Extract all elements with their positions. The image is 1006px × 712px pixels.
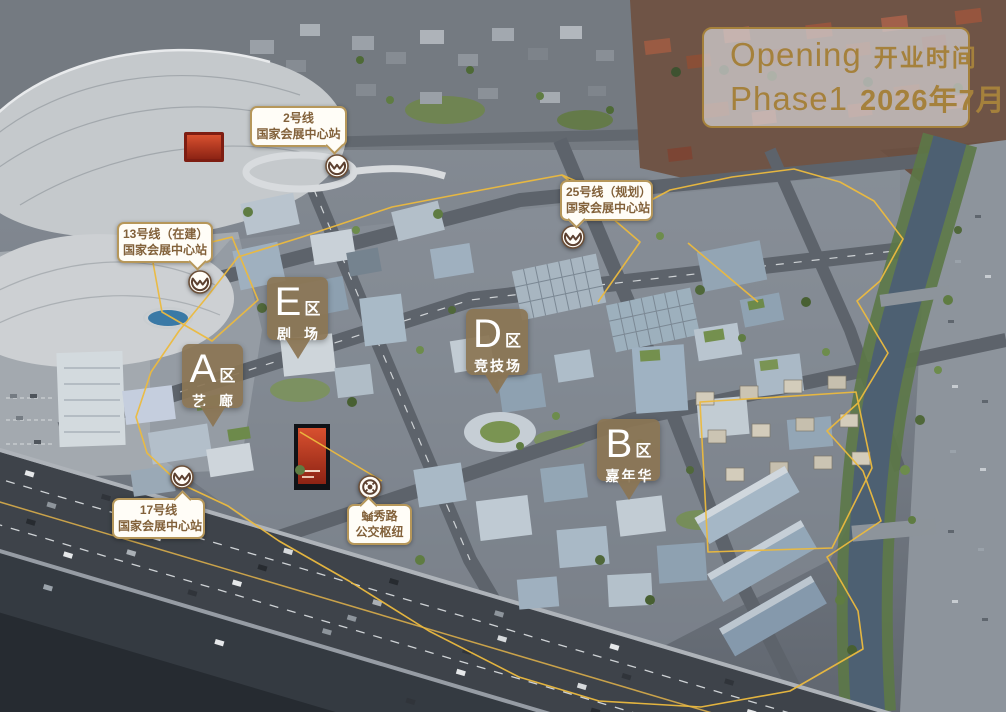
zone-pointer bbox=[616, 479, 642, 500]
billboard-screen bbox=[294, 424, 330, 490]
metro-station-icon-line13 bbox=[188, 270, 212, 294]
metro-station-icon-line2 bbox=[325, 154, 349, 178]
zone-district-suffix: 区 bbox=[304, 295, 320, 319]
callout-line2: 公交枢纽 bbox=[353, 525, 406, 541]
callout-line1: 13号线（在建） bbox=[123, 227, 207, 243]
opening-title-en: Opening bbox=[730, 36, 862, 74]
bus-hub-icon bbox=[358, 475, 382, 499]
zone-district-suffix: 区 bbox=[219, 362, 235, 386]
callout-metro-line17: 17号线 国家会展中心站 bbox=[112, 498, 205, 539]
opening-phase-en: Phase1 bbox=[730, 80, 848, 118]
callout-line1: 蟠秀路 bbox=[353, 509, 406, 525]
callout-line2: 国家会展中心站 bbox=[118, 519, 199, 535]
callout-metro-line2: 2号线 国家会展中心站 bbox=[250, 106, 347, 147]
metro-station-icon-line17 bbox=[170, 465, 194, 489]
zone-district-suffix: 区 bbox=[635, 437, 651, 461]
zone-label-e: E区 剧场 bbox=[267, 277, 328, 340]
zone-district-suffix: 区 bbox=[505, 327, 521, 351]
aerial-masterplan-rendering: Opening 开业时间 Phase1 2026年7月 2号线 国家会展中心站 … bbox=[0, 0, 1006, 712]
zone-label-b: B区 嘉年华 bbox=[597, 419, 660, 481]
opening-banner: Opening 开业时间 Phase1 2026年7月 bbox=[702, 27, 970, 128]
callout-metro-line25: 25号线（规划） 国家会展中心站 bbox=[560, 180, 653, 221]
zone-pointer bbox=[285, 338, 311, 359]
zone-letter: A bbox=[190, 352, 217, 387]
zone-label-d: D区 竞技场 bbox=[466, 309, 528, 375]
zone-pointer bbox=[484, 373, 510, 394]
zone-letter: B bbox=[606, 427, 633, 462]
callout-bus-hub: 蟠秀路 公交枢纽 bbox=[347, 504, 412, 545]
zone-label-a: A区 艺廊 bbox=[182, 344, 243, 408]
zone-letter: D bbox=[473, 317, 502, 352]
callout-line2: 国家会展中心站 bbox=[256, 127, 341, 143]
opening-banner-line2: Phase1 2026年7月 bbox=[730, 77, 968, 119]
callout-metro-line13: 13号线（在建） 国家会展中心站 bbox=[117, 222, 213, 263]
metro-station-icon-line25 bbox=[561, 225, 585, 249]
callout-line1: 2号线 bbox=[256, 111, 341, 127]
zone-pointer bbox=[200, 406, 226, 427]
opening-phase-date: 2026年7月 bbox=[860, 77, 1006, 119]
zone-letter: E bbox=[275, 285, 302, 320]
callout-line1: 25号线（规划） bbox=[566, 185, 647, 201]
callout-line1: 17号线 bbox=[118, 503, 199, 519]
opening-title-zh: 开业时间 bbox=[874, 38, 978, 73]
opening-banner-line1: Opening 开业时间 bbox=[730, 36, 968, 74]
